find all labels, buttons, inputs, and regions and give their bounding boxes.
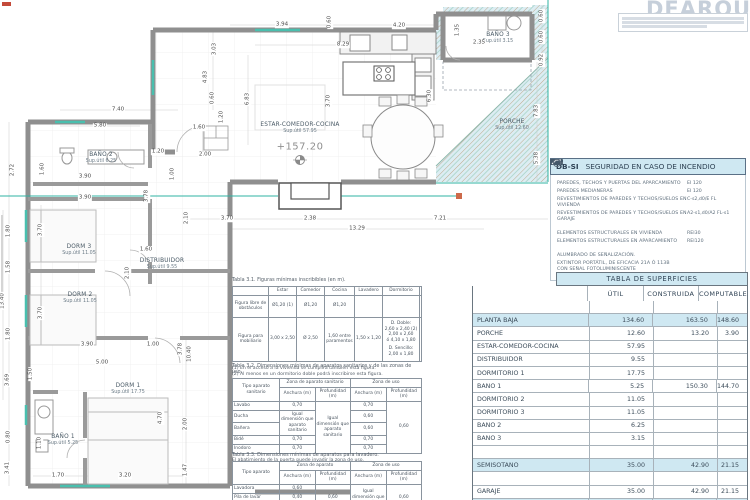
titleblock-info-bar (622, 17, 744, 20)
dimension-label: 3.41 (5, 461, 11, 475)
surface-table-row: DORMITORIO 1 17.75 (473, 366, 747, 379)
dimension-label: 3.90 (78, 195, 92, 201)
dimension-label: 1.10 (37, 436, 43, 450)
dimension-label: 10.40 (187, 345, 193, 363)
dimension-label: 5.38 (534, 151, 540, 165)
dimension-label: 1.80 (6, 224, 12, 238)
porch-dashed-outline (443, 62, 531, 90)
surface-table-row: ESTAR-COMEDOR-COCINA 57.95 (473, 340, 747, 353)
dimension-label: 1.00 (146, 342, 160, 348)
dimension-label: 1.00 (170, 167, 176, 181)
dimension-label: 6.30 (427, 89, 433, 103)
titleblock-info-bar (622, 25, 707, 28)
dimension-label: 3.78 (178, 342, 184, 356)
dimension-label: 7.40 (111, 107, 125, 113)
dimension-label: 13.40 (0, 292, 6, 310)
surface-table-row (473, 445, 747, 458)
surface-table-row: PORCHE 12.60 13.20 3.90 (473, 326, 747, 339)
titleblock-info-box (618, 13, 748, 32)
dimension-label: 1.50 (28, 367, 34, 381)
dimension-label: 5.00 (95, 360, 109, 366)
surface-table-row: BAÑO 1 5.25 150.30 144.70 (473, 379, 747, 392)
dimension-label: 1.60 (40, 162, 46, 176)
dimension-label: 3.03 (212, 42, 218, 56)
room-label: BAÑO 1 Sup.útil 5.25 (48, 434, 78, 447)
dimension-label: 4.83 (203, 70, 209, 84)
dimension-label: 1.58 (6, 260, 12, 274)
surface-table-row: SEMISÓTANO 35.00 42.90 21.15 (473, 458, 747, 471)
t32-title: Tabla 3.2. Dimensiones mínimas de aparat… (232, 363, 422, 375)
laundry-dimensions-table: Tabla 3.3. Dimensiones mínimas de aparat… (232, 452, 422, 500)
fire-safety-body: PAREDES, TECHOS Y PUERTAS DEL APARCAMIEN… (550, 175, 746, 281)
dimension-label: 13.29 (348, 226, 366, 232)
surface-table-row: PLANTA BAJA 134.60 163.50 148.60 (473, 313, 747, 326)
room-label: PORCHE Sup.útil 12.60 (495, 119, 529, 132)
sanitary-dimensions-table: Tabla 3.2. Dimensiones mínimas de aparat… (232, 363, 422, 463)
fire-safety-row: PAREDES MEDIANERAS EI 120 (557, 189, 739, 195)
surface-table-header: ÚTIL CONSTRUIDA COMPUTABLE (473, 286, 747, 301)
surface-table-row: DORMITORIO 2 11.05 (473, 392, 747, 405)
fire-safety-row: ELEMENTOS ESTRUCTURALES EN APARCAMIENTO … (557, 239, 739, 245)
margin-note-bar (1, 215, 3, 300)
dimension-label: 3.90 (80, 342, 94, 348)
dimension-label: 5.80 (93, 123, 107, 129)
dimension-label: 2.38 (303, 216, 317, 222)
dimension-label: 3.20 (118, 473, 132, 479)
dimension-label: 3.69 (5, 373, 11, 387)
dimension-label: 1.20 (219, 110, 225, 124)
fire-safety-row: PAREDES, TECHOS Y PUERTAS DEL APARCAMIEN… (557, 181, 739, 187)
fireplace (279, 183, 341, 209)
fire-safety-row: REVESTIMIENTOS DE PAREDES Y TECHOS/SUELO… (557, 211, 739, 223)
fire-safety-header: DB-SI SEGURIDAD EN CASO DE INCENDIO (550, 158, 746, 175)
minimum-figures-table: Tabla 3.1. Figuras mínimas inscribibles … (232, 277, 422, 377)
dimension-label: 4.70 (158, 411, 164, 425)
surface-table-row: DISTRIBUIDOR 9.55 (473, 353, 747, 366)
surface-table-row: BAÑO 2 6.25 (473, 419, 747, 432)
surface-area-table: TABLA DE SUPERFICIES ÚTIL CONSTRUIDA COM… (472, 272, 748, 500)
dimension-label: 7.21 (433, 216, 447, 222)
dimension-label: 0.92 (539, 53, 545, 67)
dimension-label: 7.83 (534, 104, 540, 118)
dimension-label: 1.80 (6, 327, 12, 341)
room-label: DORM 3 Sup.útil 11.05 (62, 244, 96, 257)
room-label: ESTAR-COMEDOR-COCINA Sup.útil 57.95 (260, 122, 339, 135)
dimension-label: 0.60 (210, 91, 216, 105)
room-label: DISTRIBUIDOR Sup.útil 9.55 (140, 258, 185, 271)
dimension-label: 0.60 (539, 9, 545, 23)
fire-safety-row-alumbrado: ALUMBRADO DE SEÑALIZACIÓN. (557, 253, 739, 259)
t33-title: Tabla 3.3. Dimensiones mínimas de aparat… (232, 452, 422, 458)
dimension-label: 8.29 (336, 42, 350, 48)
surface-table-row: BAÑO 3 3.15 (473, 432, 747, 445)
level-value: +157.20 (277, 142, 324, 153)
dimension-label: 3.70 (326, 94, 332, 108)
kitchen-island (343, 62, 415, 95)
dimension-label: 3.94 (275, 22, 289, 28)
fire-safety-row: REVESTIMIENTOS DE PAREDES Y TECHOS/SUELO… (557, 197, 739, 209)
col-util: ÚTIL (587, 286, 642, 301)
surface-table-row (473, 471, 747, 484)
dimension-label: 3.70 (38, 223, 44, 237)
dimension-label: 2.00 (198, 152, 212, 158)
dimension-label: 4.20 (392, 23, 406, 29)
dimension-label: 0.60 (539, 30, 545, 44)
dbsi-title: SEGURIDAD EN CASO DE INCENDIO (586, 162, 716, 171)
dimension-label: 3.70 (220, 216, 234, 222)
t31-title: Tabla 3.1. Figuras mínimas inscribibles … (232, 277, 422, 283)
col-computable: COMPUTABLE (698, 286, 747, 301)
dimension-label: 2.00 (183, 417, 189, 431)
surface-table-title: TABLA DE SUPERFICIES (556, 272, 748, 286)
dimension-label: 0.80 (6, 430, 12, 444)
dimension-label: 2.10 (184, 211, 190, 225)
dimension-label: 1.60 (192, 125, 206, 131)
dimension-label: 3.70 (38, 306, 44, 320)
dimension-label: 6.83 (245, 92, 251, 106)
sheet-corner-mark (2, 2, 11, 6)
dimension-label: 1.20 (151, 149, 165, 155)
dimension-label: 3.78 (144, 189, 150, 203)
room-label: BAÑO 3 Sup.útil 3.15 (483, 32, 513, 45)
dimension-label: 2.72 (10, 163, 16, 177)
dimension-label: 2.35 (472, 40, 486, 46)
surface-table-row: DORMITORIO 3 11.05 (473, 406, 747, 419)
room-label: DORM 1 Sup.útil 17.75 (111, 383, 145, 396)
room-label: BAÑO 2 Sup.útil 6.25 (86, 152, 116, 165)
dimension-label: 0.60 (327, 15, 333, 29)
fire-safety-panel: DB-SI SEGURIDAD EN CASO DE INCENDIO PARE… (550, 158, 746, 281)
surface-table-row: GARAJE 35.00 42.90 21.15 (473, 485, 747, 498)
fire-safety-row-extintor: EXTINTOR PORTÁTIL, DE EFICACIA 21A Ó 113… (557, 261, 739, 273)
surface-table-row (473, 301, 747, 313)
dimension-label: 1.35 (455, 23, 461, 37)
dimension-label: 2.10 (125, 266, 131, 280)
dimension-label: 1.60 (139, 247, 153, 253)
dimension-label: 1.47 (183, 463, 189, 477)
fire-safety-row: ELEMENTOS ESTRUCTURALES EN VIVIENDA REI3… (557, 231, 739, 237)
titleblock-info-bar (622, 21, 744, 24)
dimension-label: 1.70 (51, 473, 65, 479)
room-label: DORM 2 Sup.útil 11.05 (63, 292, 97, 305)
drawing-sheet: { "titleblock": { "logo": "DEARQUITEC" }… (0, 0, 750, 500)
col-construida: CONSTRUIDA (643, 286, 698, 301)
dimension-label: 3.90 (78, 174, 92, 180)
